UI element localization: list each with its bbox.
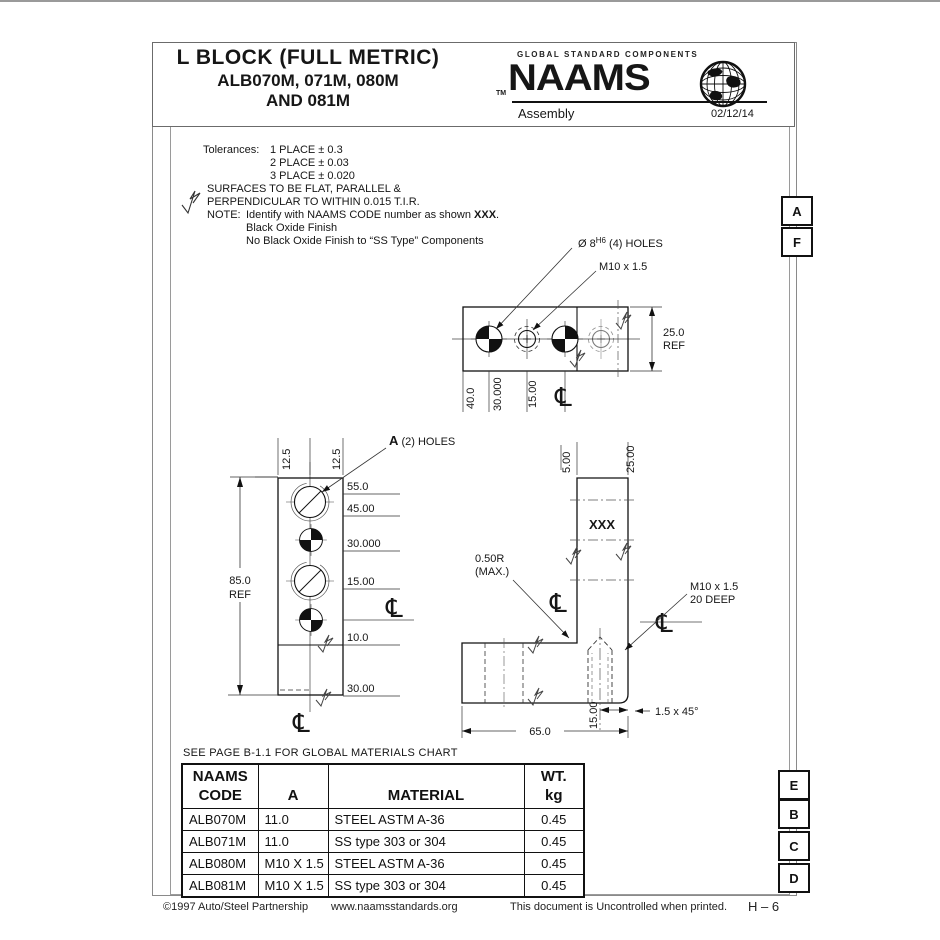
cell-a: 11.0 [258, 831, 328, 853]
side-view: 12.5 12.5 A (2) HOLES 55.0 45.00 30 [228, 433, 455, 739]
col-header-a: A [258, 764, 328, 809]
zone-marker-b: B [778, 799, 810, 829]
zone-marker-a: A [781, 196, 813, 226]
copyright-text: ©1997 Auto/Steel Partnership [163, 901, 308, 913]
cell-code: ALB071M [182, 831, 258, 853]
cell-wt: 0.45 [524, 809, 584, 831]
cell-material: STEEL ASTM A-36 [328, 809, 524, 831]
front-view: XXX 5.00 25.00 0.50R (MAX.) ℄ ℄ M10 x 1.… [462, 442, 738, 738]
tapped-hole-callout-2: 20 DEEP [690, 594, 735, 606]
col-header-material: MATERIAL [328, 764, 524, 809]
a-holes-callout: A (2) HOLES [389, 433, 455, 448]
cell-a: M10 X 1.5 [258, 875, 328, 898]
cell-code: ALB081M [182, 875, 258, 898]
cell-wt: 0.45 [524, 831, 584, 853]
dim-100: 10.0 [347, 632, 368, 644]
centerline-symbol-side-right: ℄ [385, 594, 403, 624]
cell-a: M10 X 1.5 [258, 853, 328, 875]
dim-1500-side: 15.00 [347, 576, 375, 588]
table-row: ALB071M 11.0 SS type 303 or 304 0.45 [182, 831, 584, 853]
uncontrolled-note: This document is Uncontrolled when print… [510, 901, 727, 913]
website-link[interactable]: www.naamsstandards.org [331, 901, 458, 913]
table-header-row: NAAMS CODE A MATERIAL WT. kg [182, 764, 584, 809]
zone-marker-f: F [781, 227, 813, 257]
drawing-sheet-page: L BLOCK (FULL METRIC) ALB070M, 071M, 080… [0, 0, 940, 940]
cell-a: 11.0 [258, 809, 328, 831]
plan-view: Ø 8H6 (4) HOLES M10 x 1.5 40.0 30.000 15… [452, 236, 685, 413]
zone-marker-c: C [778, 831, 810, 861]
part-marking: XXX [589, 517, 615, 532]
materials-table: NAAMS CODE A MATERIAL WT. kg ALB070M 11.… [181, 763, 585, 898]
dim-30000-plan: 30.000 [492, 377, 504, 411]
tapped-hole-callout-1: M10 x 1.5 [690, 581, 738, 593]
dim-650: 65.0 [529, 726, 550, 738]
dim-4500: 45.00 [347, 503, 375, 515]
dim-40: 40.0 [465, 388, 477, 409]
table-row: ALB070M 11.0 STEEL ASTM A-36 0.45 [182, 809, 584, 831]
radius-callout-value: 0.50R [475, 553, 504, 565]
cell-wt: 0.45 [524, 853, 584, 875]
cell-material: SS type 303 or 304 [328, 875, 524, 898]
dim-500: 5.00 [561, 452, 573, 473]
dim-85-ref-value: 85.0 [229, 575, 250, 587]
centerline-symbol-plan: ℄ [554, 383, 572, 413]
table-row: ALB081M M10 X 1.5 SS type 303 or 304 0.4… [182, 875, 584, 898]
cell-material: SS type 303 or 304 [328, 831, 524, 853]
thread-callout: M10 x 1.5 [599, 261, 647, 273]
dim-25-ref-value: 25.0 [663, 327, 684, 339]
dim-2500: 25.00 [625, 445, 637, 473]
chamfer-callout: 1.5 x 45° [655, 706, 699, 718]
dim-125-left: 12.5 [281, 449, 293, 470]
dim-25-ref-label: REF [663, 340, 685, 352]
dim-30000-side: 30.000 [347, 538, 381, 550]
holes-callout: Ø 8H6 (4) HOLES [578, 236, 663, 250]
col-header-wt: WT. kg [524, 764, 584, 809]
zone-marker-d: D [778, 863, 810, 893]
cell-code: ALB080M [182, 853, 258, 875]
dim-3000: 30.00 [347, 683, 375, 695]
centerline-symbol-front-left: ℄ [549, 589, 567, 619]
radius-callout-max: (MAX.) [475, 566, 509, 578]
zone-marker-e: E [778, 770, 810, 800]
page-number: H – 6 [748, 899, 779, 914]
materials-chart-note: SEE PAGE B-1.1 FOR GLOBAL MATERIALS CHAR… [183, 747, 458, 759]
dim-55: 55.0 [347, 481, 368, 493]
col-header-code: NAAMS CODE [182, 764, 258, 809]
cell-material: STEEL ASTM A-36 [328, 853, 524, 875]
dim-125-right: 12.5 [331, 449, 343, 470]
dim-1500-front: 15.00 [588, 701, 600, 729]
dim-1500-plan: 15.00 [527, 380, 539, 408]
table-row: ALB080M M10 X 1.5 STEEL ASTM A-36 0.45 [182, 853, 584, 875]
centerline-symbol-front-right: ℄ [655, 609, 673, 639]
cell-code: ALB070M [182, 809, 258, 831]
dim-85-ref-label: REF [229, 589, 251, 601]
centerline-symbol-side-bottom: ℄ [292, 709, 310, 739]
cell-wt: 0.45 [524, 875, 584, 898]
